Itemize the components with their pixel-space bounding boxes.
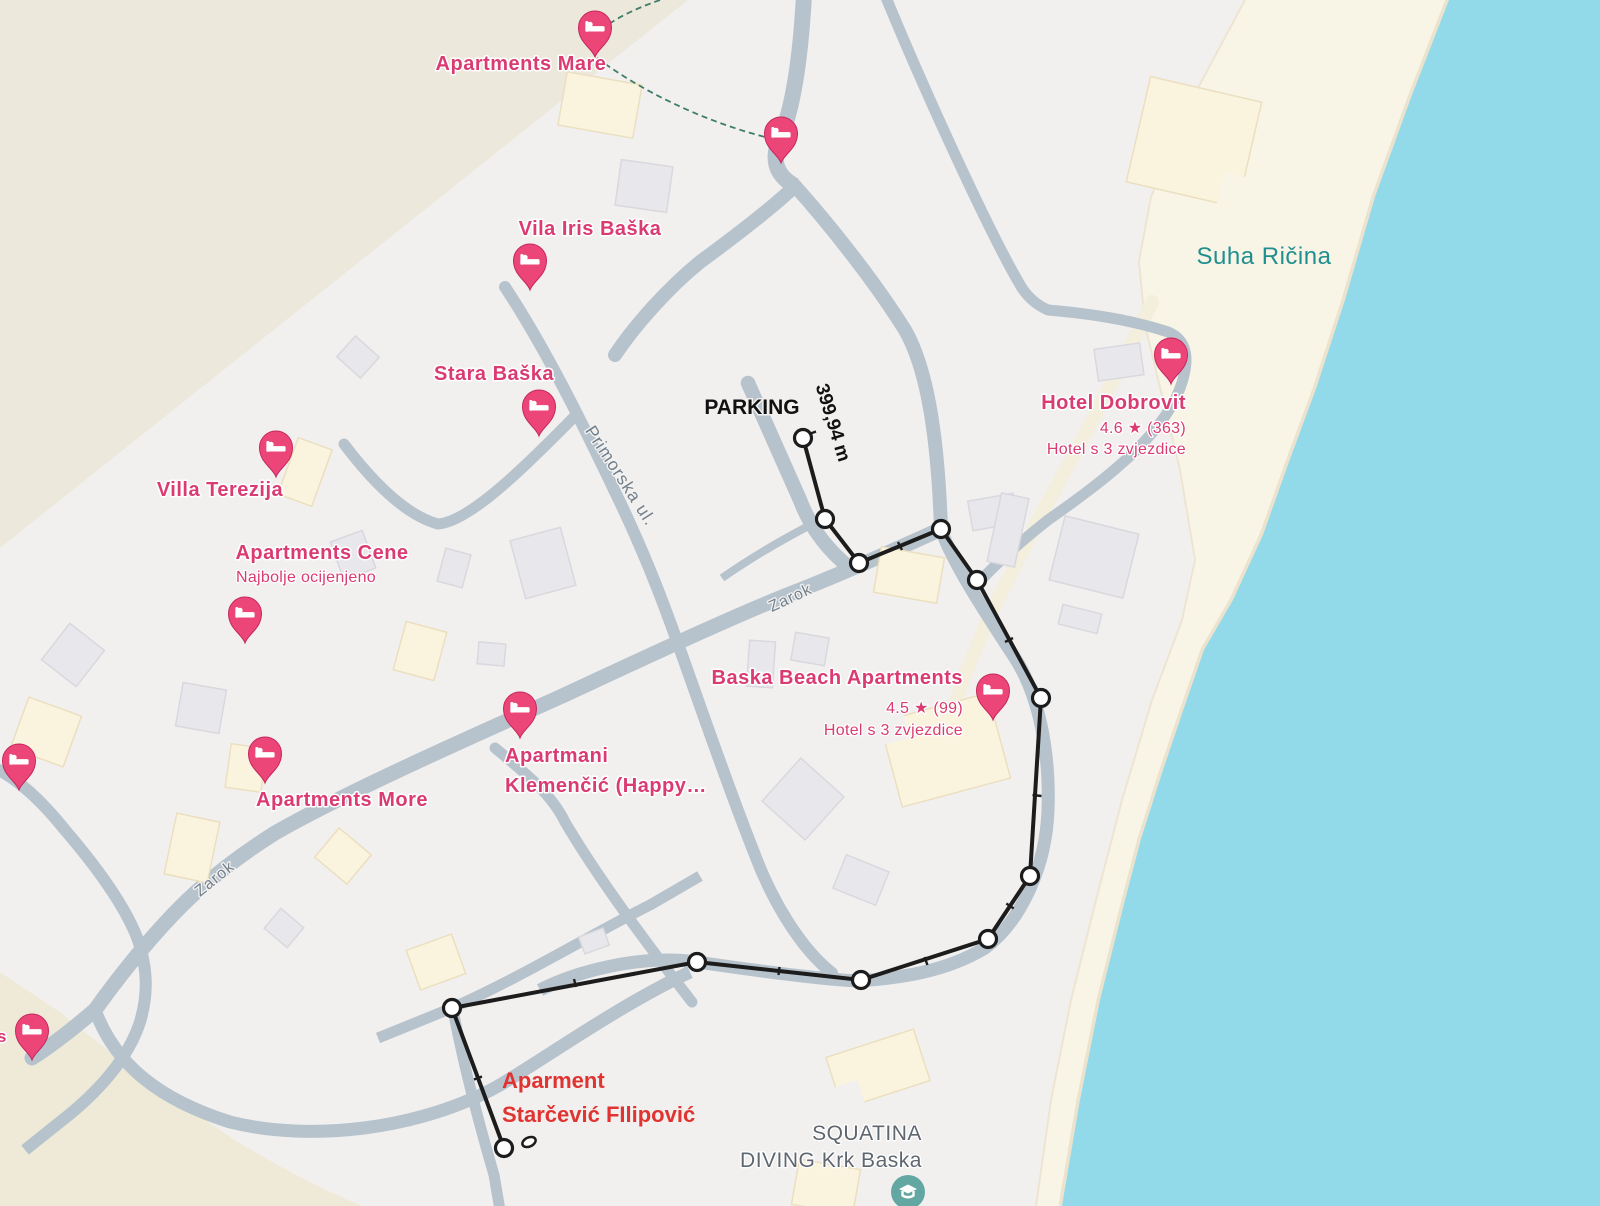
svg-text:Najbolje ocijenjeno: Najbolje ocijenjeno [236,569,376,586]
svg-text:Apartments Mare: Apartments Mare [436,53,607,75]
svg-text:Hotel Dobrovit: Hotel Dobrovit [1041,392,1186,414]
svg-text:Vila Iris Baška: Vila Iris Baška [519,218,662,240]
svg-text:Suha Ričina: Suha Ričina [1197,243,1332,270]
svg-text:Stara Baška: Stara Baška [434,363,554,385]
svg-text:DIVING Krk Baska: DIVING Krk Baska [740,1149,922,1172]
svg-text:Apartments Cene: Apartments Cene [235,542,408,564]
svg-text:Klemenčić (Happy…: Klemenčić (Happy… [505,775,707,797]
svg-text:Villa Terezija: Villa Terezija [157,479,284,501]
svg-text:Hotel s 3 zvjezdice: Hotel s 3 zvjezdice [1047,441,1186,458]
svg-text:4.5 ★ (99): 4.5 ★ (99) [886,700,963,717]
svg-text:Starčević FIlipović: Starčević FIlipović [502,1102,695,1127]
svg-text:Aparment: Aparment [502,1068,605,1093]
svg-text:Baska Beach Apartments: Baska Beach Apartments [712,667,963,689]
svg-text:Apartmani: Apartmani [505,745,608,767]
svg-text:PARKING: PARKING [704,396,799,419]
svg-text:4.6 ★ (363): 4.6 ★ (363) [1100,420,1186,437]
svg-text:SQUATINA: SQUATINA [812,1122,922,1145]
svg-text:Hotel s 3 zvjezdice: Hotel s 3 zvjezdice [824,722,963,739]
svg-text:Apartments More: Apartments More [256,789,428,811]
svg-text:s: s [0,1027,6,1046]
